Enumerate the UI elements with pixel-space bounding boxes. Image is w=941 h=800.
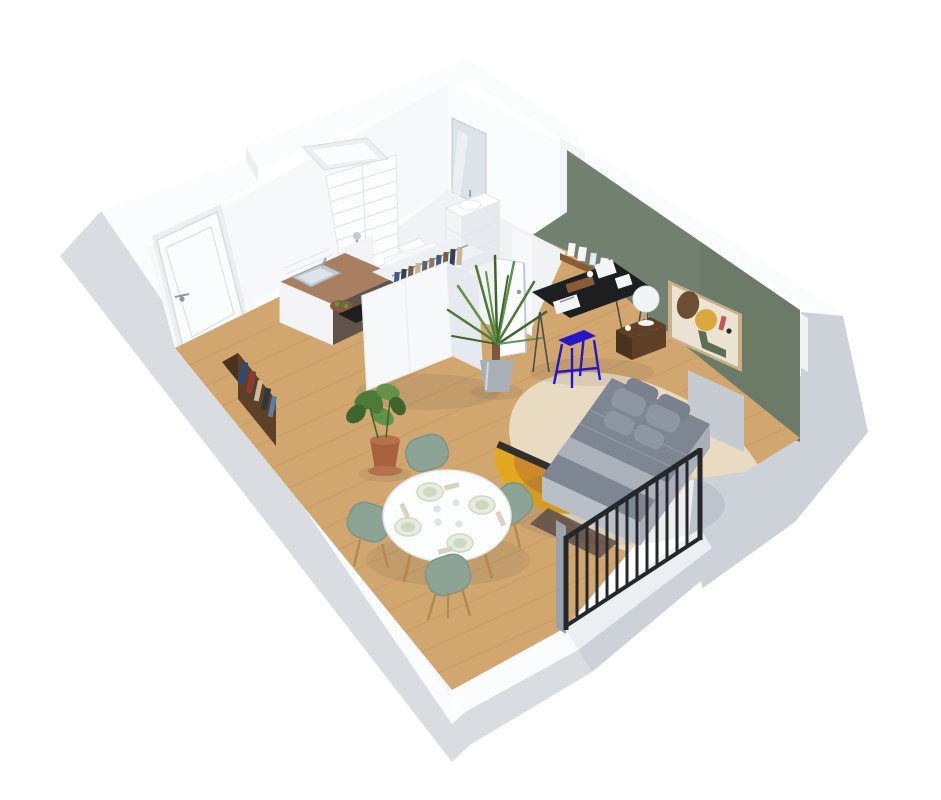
palm-pot (480, 360, 514, 392)
plant-saucer (368, 466, 402, 476)
open-door-handle (517, 290, 521, 294)
floorplan-render (0, 0, 941, 800)
floorplan-svg (0, 0, 941, 800)
desk-cup (587, 271, 593, 277)
nightstand-cup (625, 325, 631, 331)
vanity-sink (459, 200, 481, 210)
plant-pot-rim (370, 435, 400, 445)
lamp-base (638, 320, 654, 326)
lamp-globe (633, 286, 659, 312)
entry-door-handle (179, 296, 184, 301)
